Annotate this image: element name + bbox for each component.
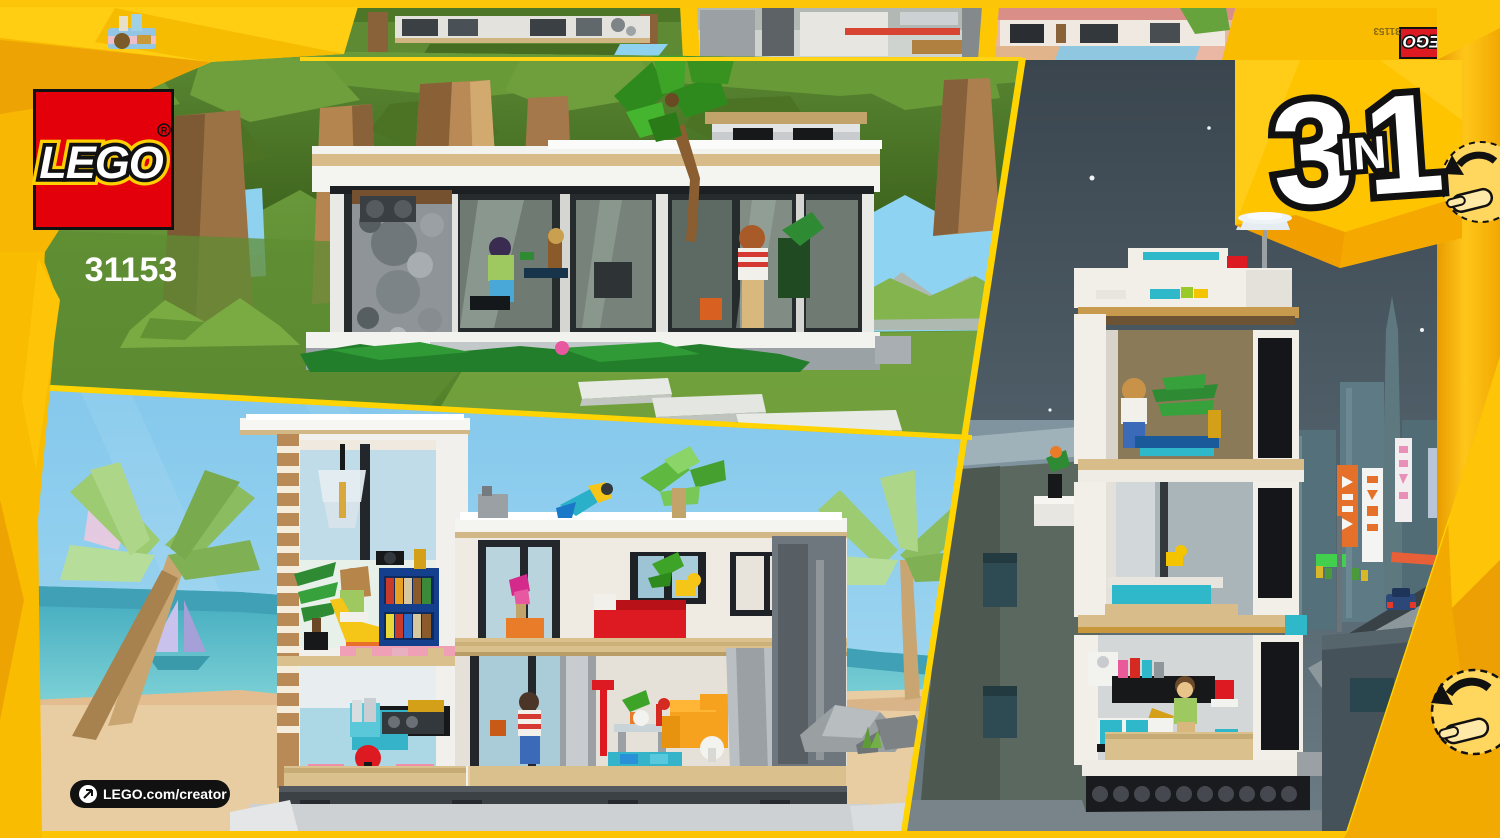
svg-text:LEGO: LEGO: [39, 137, 164, 188]
svg-text:31153: 31153: [85, 251, 178, 289]
svg-text:31153: 31153: [1373, 25, 1401, 36]
svg-text:LEGO.com/creator: LEGO.com/creator: [103, 786, 227, 802]
svg-text:IN: IN: [1338, 126, 1388, 181]
svg-text:R: R: [161, 126, 168, 136]
